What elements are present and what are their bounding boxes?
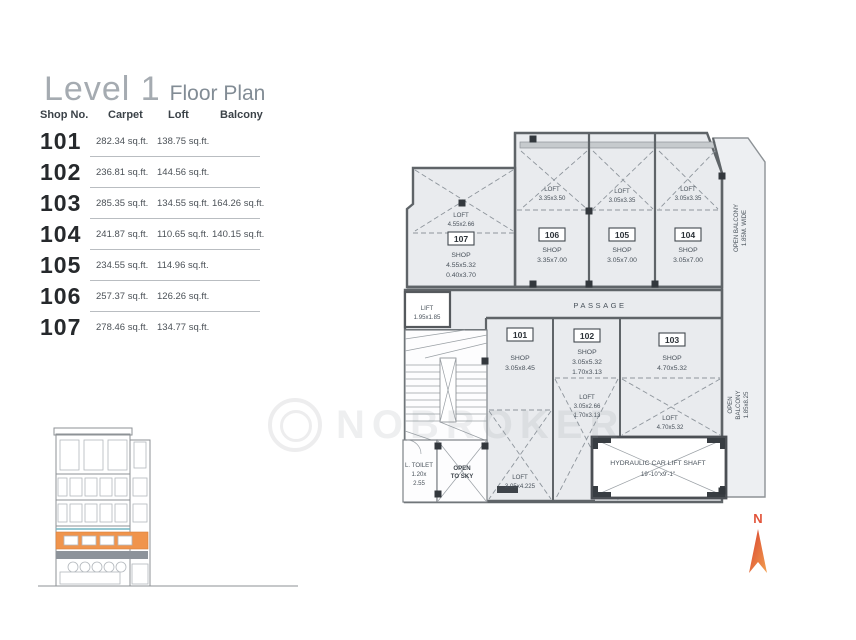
shop-label: SHOP [577,349,597,356]
table-row: 102 236.81 sq.ft. 144.56 sq.ft. [0,159,340,190]
hydraulic-dims: 19'-10"x9'-1" [641,471,675,478]
shop-number: 102 [580,331,595,341]
shop-number: 107 [454,234,469,244]
floor-plan-subtitle: Floor Plan [170,82,266,106]
loft-dims: 3.05x3.35 [609,197,636,204]
table-row: 103 285.35 sq.ft. 134.55 sq.ft. 164.26 s… [0,190,340,221]
balcony-right-dims: 1.85x8.25 [743,391,750,418]
loft-dims2: 1.70x3.13 [574,412,601,419]
hydraulic-car-lift-shaft: HYDRAULIC CAR LIFT SHAFT 19'-10"x9'-1" [592,437,726,498]
shop-number: 106 [545,230,560,240]
toilet-dim1: 1.20x [412,471,427,478]
north-compass: N [749,511,767,573]
carpet-value: 241.87 sq.ft. [96,229,148,240]
open-to-sky-line2: TO SKY [451,473,474,480]
row-divider [90,187,260,188]
col-header-carpet: Carpet [108,109,143,121]
col-header-balcony: Balcony [220,109,263,121]
loft-value: 134.55 sq.ft. [157,198,209,209]
shop-label: SHOP [678,247,698,254]
carpet-value: 257.37 sq.ft. [96,291,148,302]
shop-dims: 4.55x5.32 [446,262,476,269]
loft-label: LOFT [544,186,560,193]
shop-number: 102 [40,159,81,186]
toilet-dim2: 2.55 [413,480,425,487]
shop-number: 105 [615,230,630,240]
shop-number: 107 [40,314,81,341]
loft-value: 144.56 sq.ft. [157,167,209,178]
open-to-sky-line1: OPEN [453,465,470,472]
loft-dims: 4.55x2.66 [448,221,475,228]
shop-dims: 3.05x7.00 [607,257,637,264]
shop-dims: 3.05x7.00 [673,257,703,264]
table-row: 105 234.55 sq.ft. 114.96 sq.ft. [0,252,340,283]
staircase [405,330,487,448]
north-arrow-icon [749,529,767,573]
shop-dims2: 1.70x3.13 [572,369,602,376]
level-title: Level 1 [44,70,161,109]
north-label: N [753,511,762,526]
loft-label: LOFT [579,394,595,401]
shop-label: SHOP [662,355,682,362]
loft-value: 134.77 sq.ft. [157,322,209,333]
shop-label: SHOP [612,247,632,254]
carpet-value: 234.55 sq.ft. [96,260,148,271]
unit-107: LOFT 4.55x2.66 107 SHOP 4.55x5.32 0.40x3… [446,212,476,279]
row-divider [90,280,260,281]
shop-dims: 3.05x8.45 [505,365,535,372]
row-divider [90,218,260,219]
shop-dims: 4.70x5.32 [657,365,687,372]
row-divider [90,156,260,157]
loft-label: LOFT [680,186,696,193]
table-row: 106 257.37 sq.ft. 126.26 sq.ft. [0,283,340,314]
col-header-shop: Shop No. [40,109,88,121]
shop-number: 101 [513,330,528,340]
page-title: Level 1 Floor Plan [44,70,265,109]
balcony-right-label1: OPEN [727,396,734,413]
carpet-value: 285.35 sq.ft. [96,198,148,209]
col-header-loft: Loft [168,109,189,121]
loft-label: LOFT [453,212,469,219]
loft-label: LOFT [662,415,678,422]
loft-value: 110.65 sq.ft. [157,229,209,240]
floor-plan: LIFT 1.95x1.85 L. TOILET 1.20x 2.55 [385,115,785,615]
loft-label: LOFT [614,188,630,195]
shop-dims2: 0.40x3.70 [446,272,476,279]
balcony-right-label2: BALCONY [735,390,742,419]
building-elevation [38,420,300,595]
carpet-value: 278.46 sq.ft. [96,322,148,333]
hydraulic-label: HYDRAULIC CAR LIFT SHAFT [610,460,705,467]
unit-102: 102 SHOP 3.05x5.32 1.70x3.13 LOFT 3.05x2… [572,329,602,419]
shop-label: SHOP [451,252,471,259]
shop-number: 103 [665,335,680,345]
table-row: 101 282.34 sq.ft. 138.75 sq.ft. [0,128,340,159]
carpet-value: 282.34 sq.ft. [96,136,148,147]
shop-number: 105 [40,252,81,279]
loft-value: 138.75 sq.ft. [157,136,209,147]
shop-label: SHOP [510,355,530,362]
carpet-value: 236.81 sq.ft. [96,167,148,178]
shop-number: 103 [40,190,81,217]
shop-label: SHOP [542,247,562,254]
table-row: 104 241.87 sq.ft. 110.65 sq.ft. 140.15 s… [0,221,340,252]
row-divider [90,249,260,250]
loft-label: LOFT [512,474,528,481]
toilet-room: L. TOILET 1.20x 2.55 [403,440,437,502]
loft-dims: 4.70x5.32 [657,424,684,431]
loft-value: 126.26 sq.ft. [157,291,209,302]
balcony-top-label: OPEN BALCONY [733,204,740,252]
top-double-wall [520,142,715,148]
loft-dims: 3.05x2.66 [574,403,601,410]
shop-number: 104 [40,221,81,248]
loft-dims: 3.05x3.35 [675,195,702,202]
balcony-top-dims: 1.85M. WIDE [741,210,748,246]
lift-label: LIFT [421,305,434,312]
loft-dims: 3.35x3.50 [539,195,566,202]
lift-room: LIFT 1.95x1.85 [405,292,450,327]
loft-dims: 3.05x4.225 [505,483,536,490]
passage-label: PASSAGE [573,301,626,310]
loft-value: 114.96 sq.ft. [157,260,209,271]
balcony-value: 164.26 sq.ft. [212,198,264,209]
open-to-sky: OPEN TO SKY [437,440,487,502]
shop-dims: 3.05x5.32 [572,359,602,366]
shop-dims: 3.35x7.00 [537,257,567,264]
shop-number: 101 [40,128,81,155]
row-divider [90,311,260,312]
shop-number: 104 [681,230,696,240]
toilet-label: L. TOILET [405,462,433,469]
lift-dims: 1.95x1.85 [414,314,441,321]
table-row: 107 278.46 sq.ft. 134.77 sq.ft. [0,314,340,345]
shop-number: 106 [40,283,81,310]
balcony-value: 140.15 sq.ft. [212,229,264,240]
